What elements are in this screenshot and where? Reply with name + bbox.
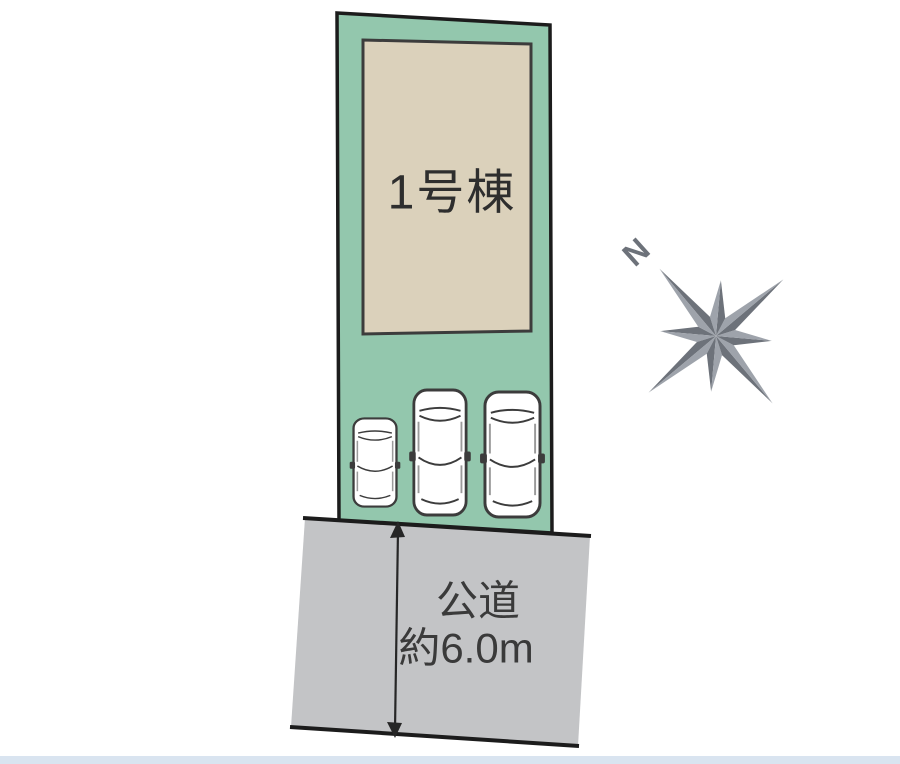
compass-north-label: N — [615, 231, 656, 273]
compass-rose-icon: N — [615, 231, 783, 404]
car-right — [480, 392, 545, 517]
page-bottom-strip — [0, 756, 900, 764]
site-plan-page: 1号棟 公道 約6.0m N — [0, 0, 900, 764]
car-middle — [409, 390, 471, 515]
road-label-line1: 公道 — [436, 578, 520, 625]
site-plan-figure: 1号棟 公道 約6.0m N — [0, 0, 900, 764]
car-small — [350, 418, 401, 506]
building-label: 1号棟 — [388, 167, 517, 220]
road-label-line2: 約6.0m — [398, 625, 533, 672]
